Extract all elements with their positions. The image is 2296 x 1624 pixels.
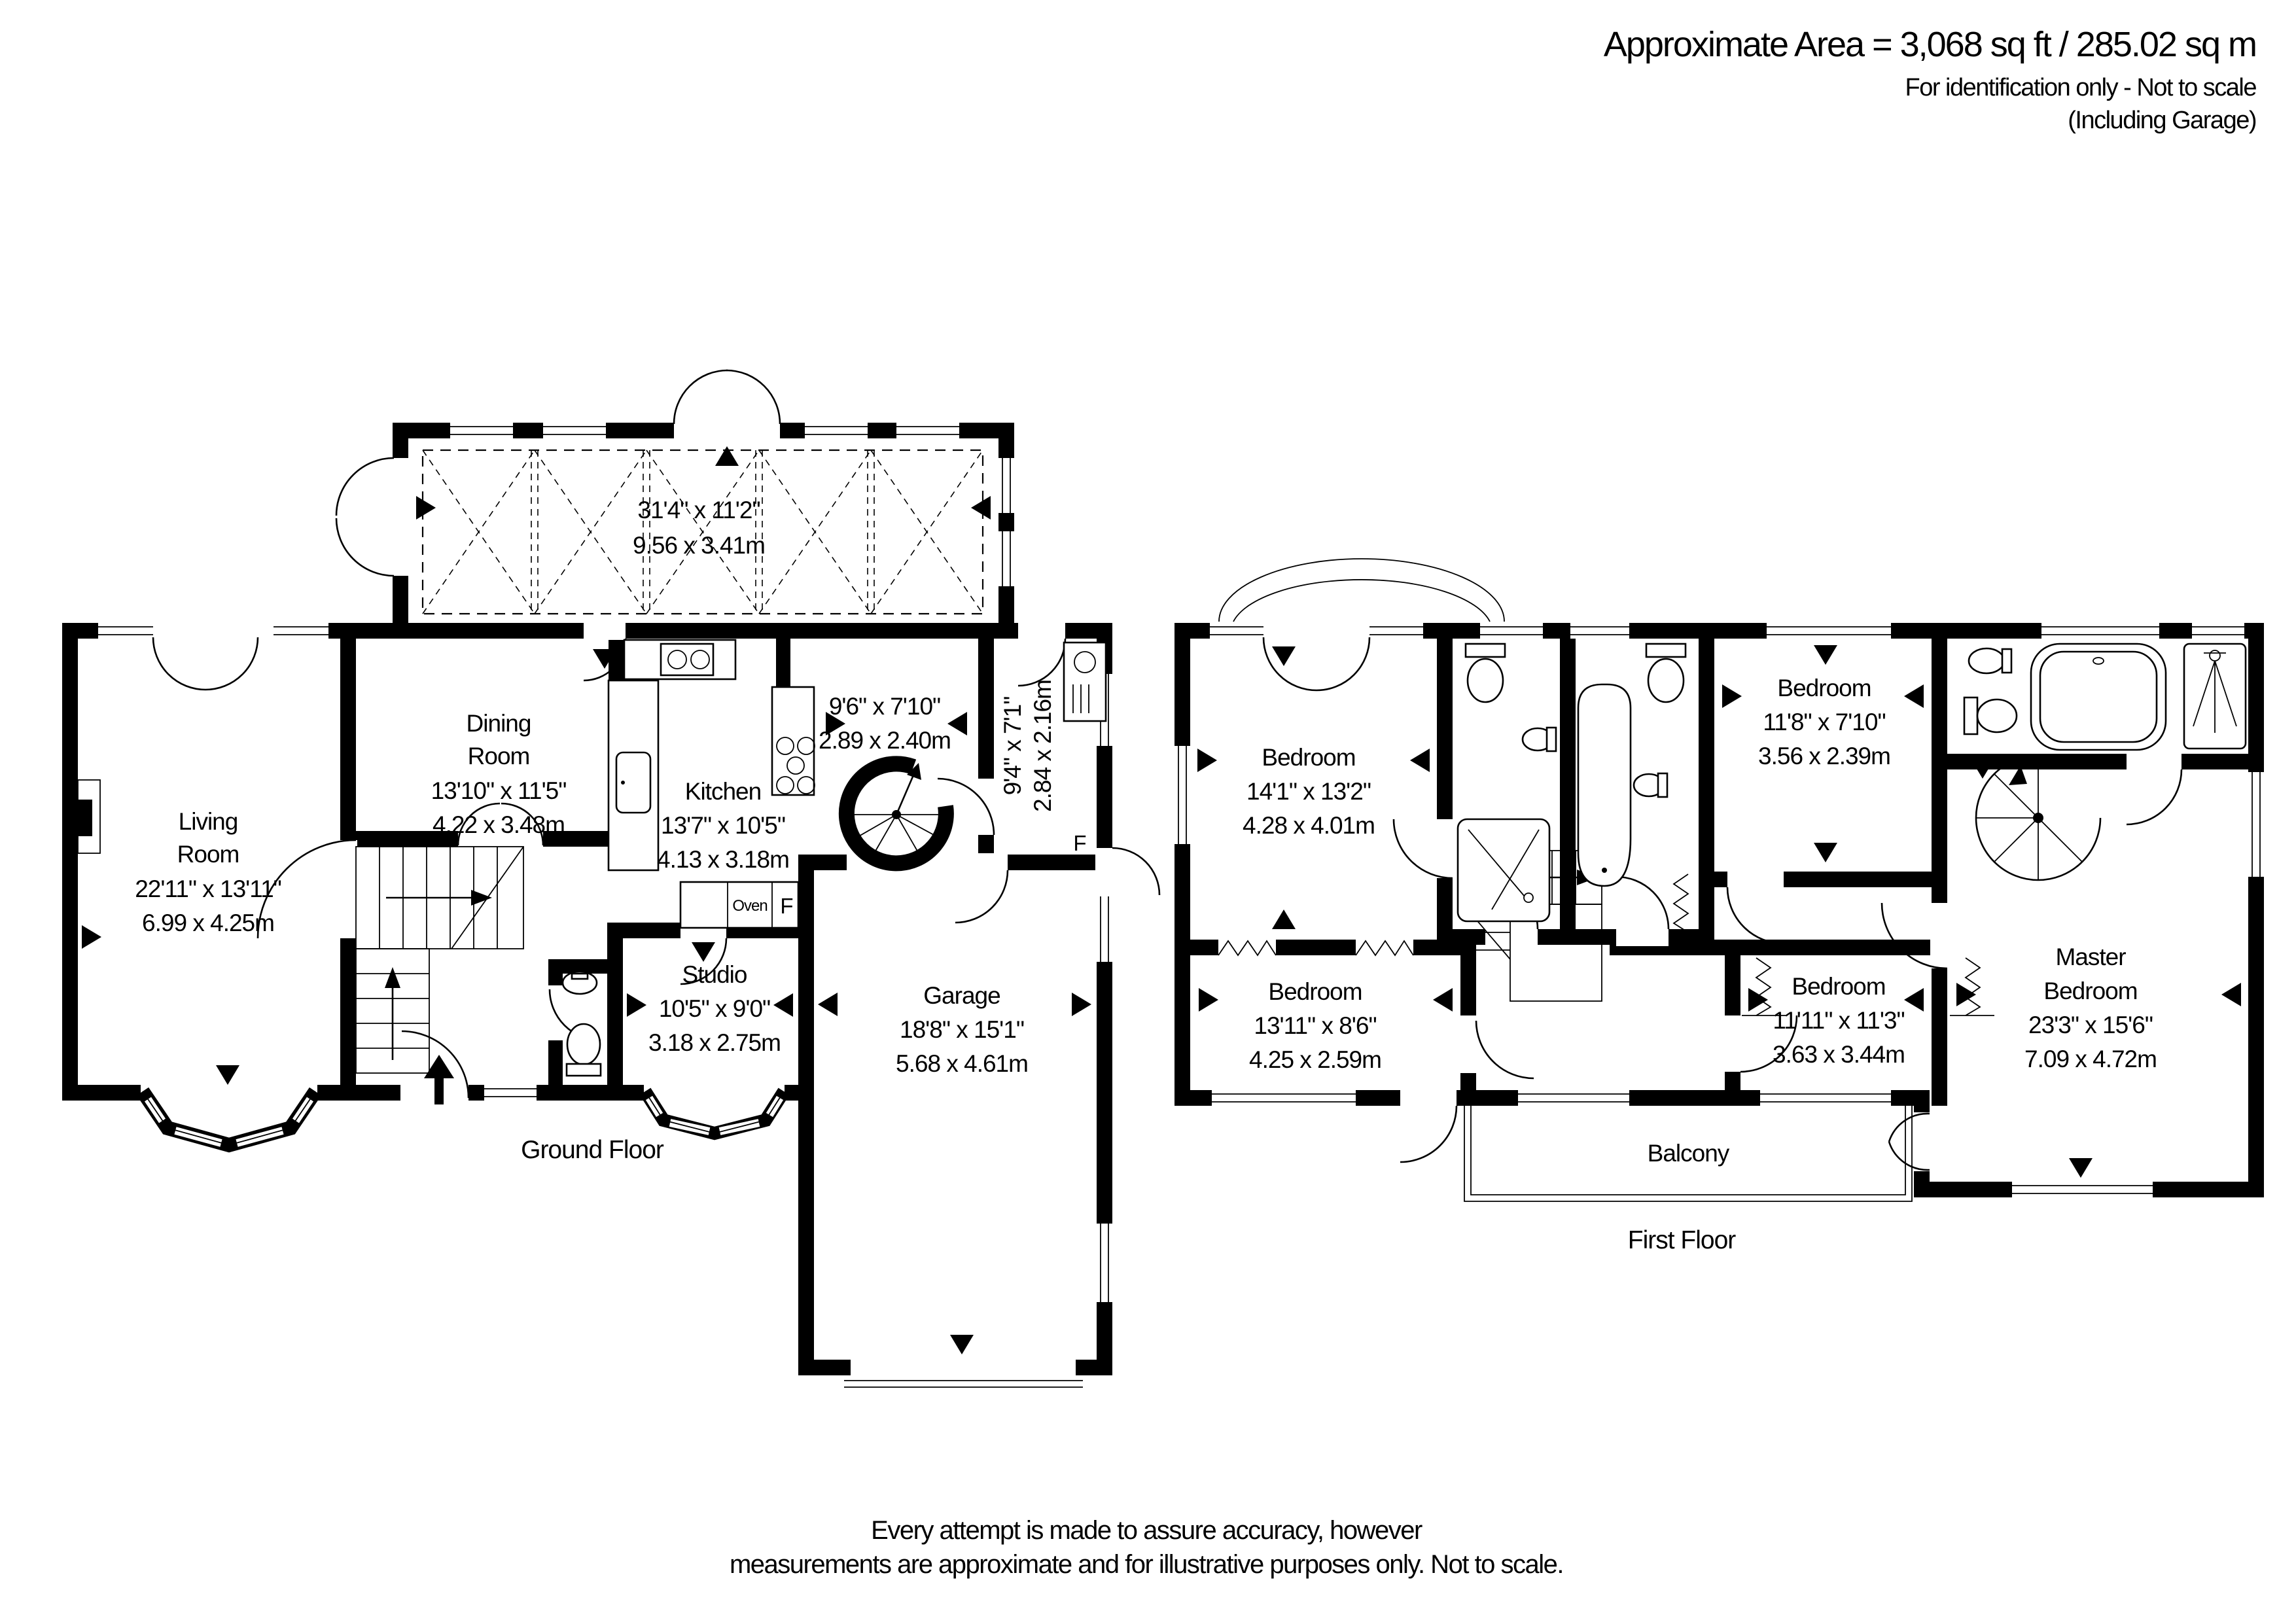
bedroom1-dims-m: 4.28 x 4.01m	[1243, 812, 1375, 839]
ff-ensuite-basin-icon	[1523, 728, 1556, 751]
window	[2248, 772, 2264, 877]
garage-name: Garage	[923, 982, 1000, 1009]
window	[1760, 1090, 1891, 1106]
ff-spiral-staircase-icon	[1976, 756, 2100, 880]
gf-wc-basin-icon	[563, 972, 597, 994]
approximate-area-text: Approximate Area = 3,068 sq ft / 285.02 …	[1604, 25, 2256, 64]
gf-oven-unit: Oven F	[680, 882, 798, 928]
ff-ensuite-toilet-icon	[1466, 644, 1505, 702]
ff-arch-window	[1219, 559, 1504, 622]
gf-bay-window-studio	[645, 1091, 784, 1133]
window	[1767, 623, 1891, 639]
ff-masterbath-bath-icon	[2031, 644, 2166, 750]
window	[274, 623, 328, 639]
garage-dims-m: 5.68 x 4.61m	[896, 1050, 1028, 1077]
disclaimer-line1: Every attempt is made to assure accuracy…	[871, 1516, 1422, 1545]
master-bedroom-name1: Master	[2055, 944, 2126, 970]
window	[1210, 623, 1263, 639]
bedroom2-dims-m: 3.56 x 2.39m	[1758, 743, 1890, 769]
window	[98, 623, 153, 639]
living-room-dims-ft: 22'11" x 13'11"	[135, 875, 281, 902]
dining-room-dims-ft: 13'10" x 11'5"	[431, 777, 567, 804]
bedroom1-name: Bedroom	[1262, 744, 1355, 771]
living-room-name2: Room	[177, 841, 239, 868]
bedroom4-name: Bedroom	[1268, 978, 1362, 1005]
ground-floor-plan: Oven F F	[62, 370, 1159, 1387]
bedroom3-dims-m: 3.63 x 3.44m	[1773, 1041, 1905, 1068]
ff-masterbath-toilet-icon	[1964, 697, 2017, 734]
first-floor-label: First Floor	[1628, 1226, 1737, 1254]
utility-fridge-label: F	[1073, 831, 1086, 855]
first-floor-plan: Bedroom 14'1" x 13'2" 4.28 x 4.01m Bedro…	[1174, 559, 2264, 1254]
garage-dims-ft: 18'8" x 15'1"	[900, 1016, 1024, 1043]
window	[1518, 1090, 1629, 1106]
window	[805, 423, 868, 438]
bedroom4-dims-ft: 13'11" x 8'6"	[1254, 1012, 1376, 1039]
studio-dims-ft: 10'5" x 9'0"	[659, 995, 770, 1022]
ff-masterbath-basin-icon	[1969, 648, 2011, 673]
window	[998, 531, 1014, 586]
conservatory-dims-ft: 31'4" x 11'2"	[637, 497, 760, 523]
window	[1097, 1224, 1112, 1302]
ff-masterbath-shower-icon	[2184, 644, 2246, 749]
bedroom4-dims-m: 4.25 x 2.59m	[1249, 1046, 1381, 1073]
living-room-name1: Living	[179, 808, 238, 835]
window	[2041, 623, 2159, 639]
window	[1097, 896, 1112, 962]
including-garage-text: (Including Garage)	[2068, 107, 2256, 134]
window	[543, 423, 606, 438]
living-room-dims-m: 6.99 x 4.25m	[142, 909, 274, 936]
utility-dims-ft: 9'4" x 7'1"	[999, 697, 1026, 796]
oven-label: Oven	[732, 897, 767, 915]
master-bedroom-dims-m: 7.09 x 4.72m	[2024, 1046, 2157, 1072]
breakfast-dims-m: 2.89 x 2.40m	[819, 727, 951, 754]
window	[1570, 623, 1629, 639]
master-bedroom-name2: Bedroom	[2043, 978, 2137, 1004]
studio-dims-m: 3.18 x 2.75m	[648, 1029, 781, 1056]
window	[2192, 623, 2244, 639]
dining-room-name1: Dining	[467, 710, 531, 737]
ground-floor-label: Ground Floor	[521, 1136, 664, 1164]
balcony-label: Balcony	[1648, 1140, 1730, 1167]
kitchen-name: Kitchen	[685, 778, 761, 805]
gf-staircase	[356, 847, 523, 1073]
bedroom3-name: Bedroom	[1792, 973, 1885, 1000]
breakfast-dims-ft: 9'6" x 7'10"	[829, 693, 940, 720]
disclaimer-line2: measurements are approximate and for ill…	[730, 1550, 1563, 1579]
identification-text: For identification only - Not to scale	[1905, 74, 2257, 101]
ff-bathroom-bath-icon	[1578, 684, 1631, 886]
gf-bay-window-living	[143, 1091, 315, 1145]
gf-fireplace	[78, 780, 100, 853]
dining-room-name2: Room	[468, 743, 530, 769]
window	[998, 458, 1014, 513]
bedroom3-dims-ft: 11'11" x 11'3"	[1773, 1007, 1904, 1034]
floorplan-canvas: Approximate Area = 3,068 sq ft / 285.02 …	[0, 0, 2296, 1624]
fridge-label: F	[780, 894, 792, 918]
dining-room-dims-m: 4.22 x 3.48m	[433, 811, 565, 838]
master-bedroom-dims-ft: 23'3" x 15'6"	[2028, 1012, 2153, 1038]
window	[2012, 1182, 2153, 1197]
kitchen-dims-ft: 13'7" x 10'5"	[661, 812, 785, 839]
ff-ensuite-shower-icon	[1458, 819, 1549, 921]
ff-bathroom-basin-icon	[1634, 773, 1667, 797]
studio-name: Studio	[682, 961, 747, 988]
gf-spiral-staircase-icon	[847, 763, 946, 863]
gf-utility-sink-icon	[1064, 643, 1106, 721]
window	[896, 423, 959, 438]
window	[1369, 623, 1423, 639]
conservatory-dims-m: 9.56 x 3.41m	[633, 532, 765, 559]
header: Approximate Area = 3,068 sq ft / 285.02 …	[1604, 25, 2257, 134]
window	[1480, 623, 1543, 639]
window	[1174, 746, 1190, 844]
utility-dims-m: 2.84 x 2.16m	[1029, 680, 1056, 812]
window	[450, 423, 513, 438]
disclaimer: Every attempt is made to assure accuracy…	[730, 1516, 1563, 1579]
window	[1212, 1090, 1356, 1106]
window	[484, 1085, 537, 1101]
kitchen-dims-m: 4.13 x 3.18m	[657, 846, 789, 873]
bedroom2-dims-ft: 11'8" x 7'10"	[1763, 709, 1885, 735]
bedroom1-dims-ft: 14'1" x 13'2"	[1246, 778, 1371, 805]
gf-wc-toilet-icon	[567, 1024, 601, 1076]
bedroom2-name: Bedroom	[1777, 675, 1871, 701]
ff-bathroom-toilet-icon	[1646, 644, 1686, 702]
